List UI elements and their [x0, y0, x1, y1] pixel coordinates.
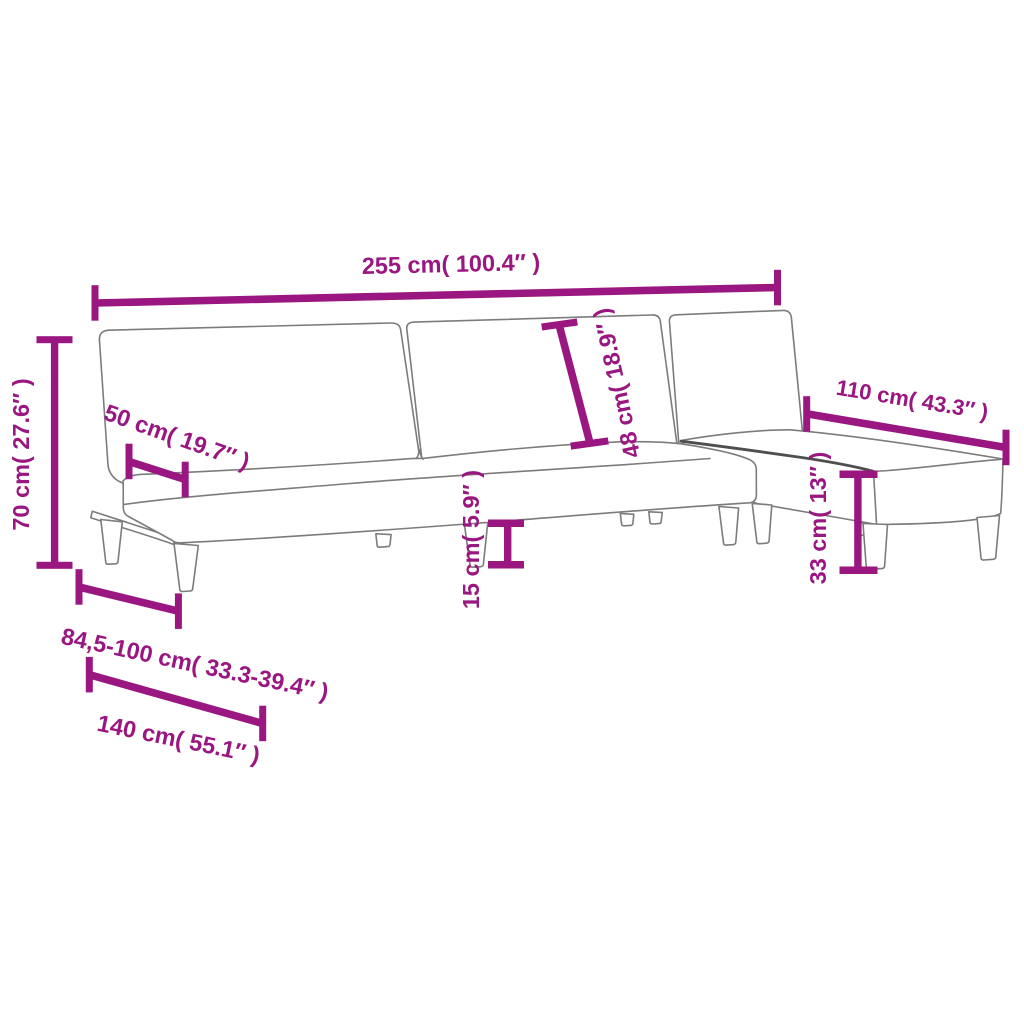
- svg-text:84,5-100 cm( 33.3-39.4″ ): 84,5-100 cm( 33.3-39.4″ ): [59, 623, 331, 705]
- svg-text:15 cm( 5.9″ ): 15 cm( 5.9″ ): [458, 470, 484, 609]
- svg-text:70 cm( 27.6″ ): 70 cm( 27.6″ ): [8, 378, 34, 530]
- svg-text:110 cm( 43.3″ ): 110 cm( 43.3″ ): [834, 375, 990, 425]
- svg-text:33 cm( 13″ ): 33 cm( 13″ ): [805, 452, 831, 585]
- svg-text:255 cm( 100.4″ ): 255 cm( 100.4″ ): [361, 249, 540, 279]
